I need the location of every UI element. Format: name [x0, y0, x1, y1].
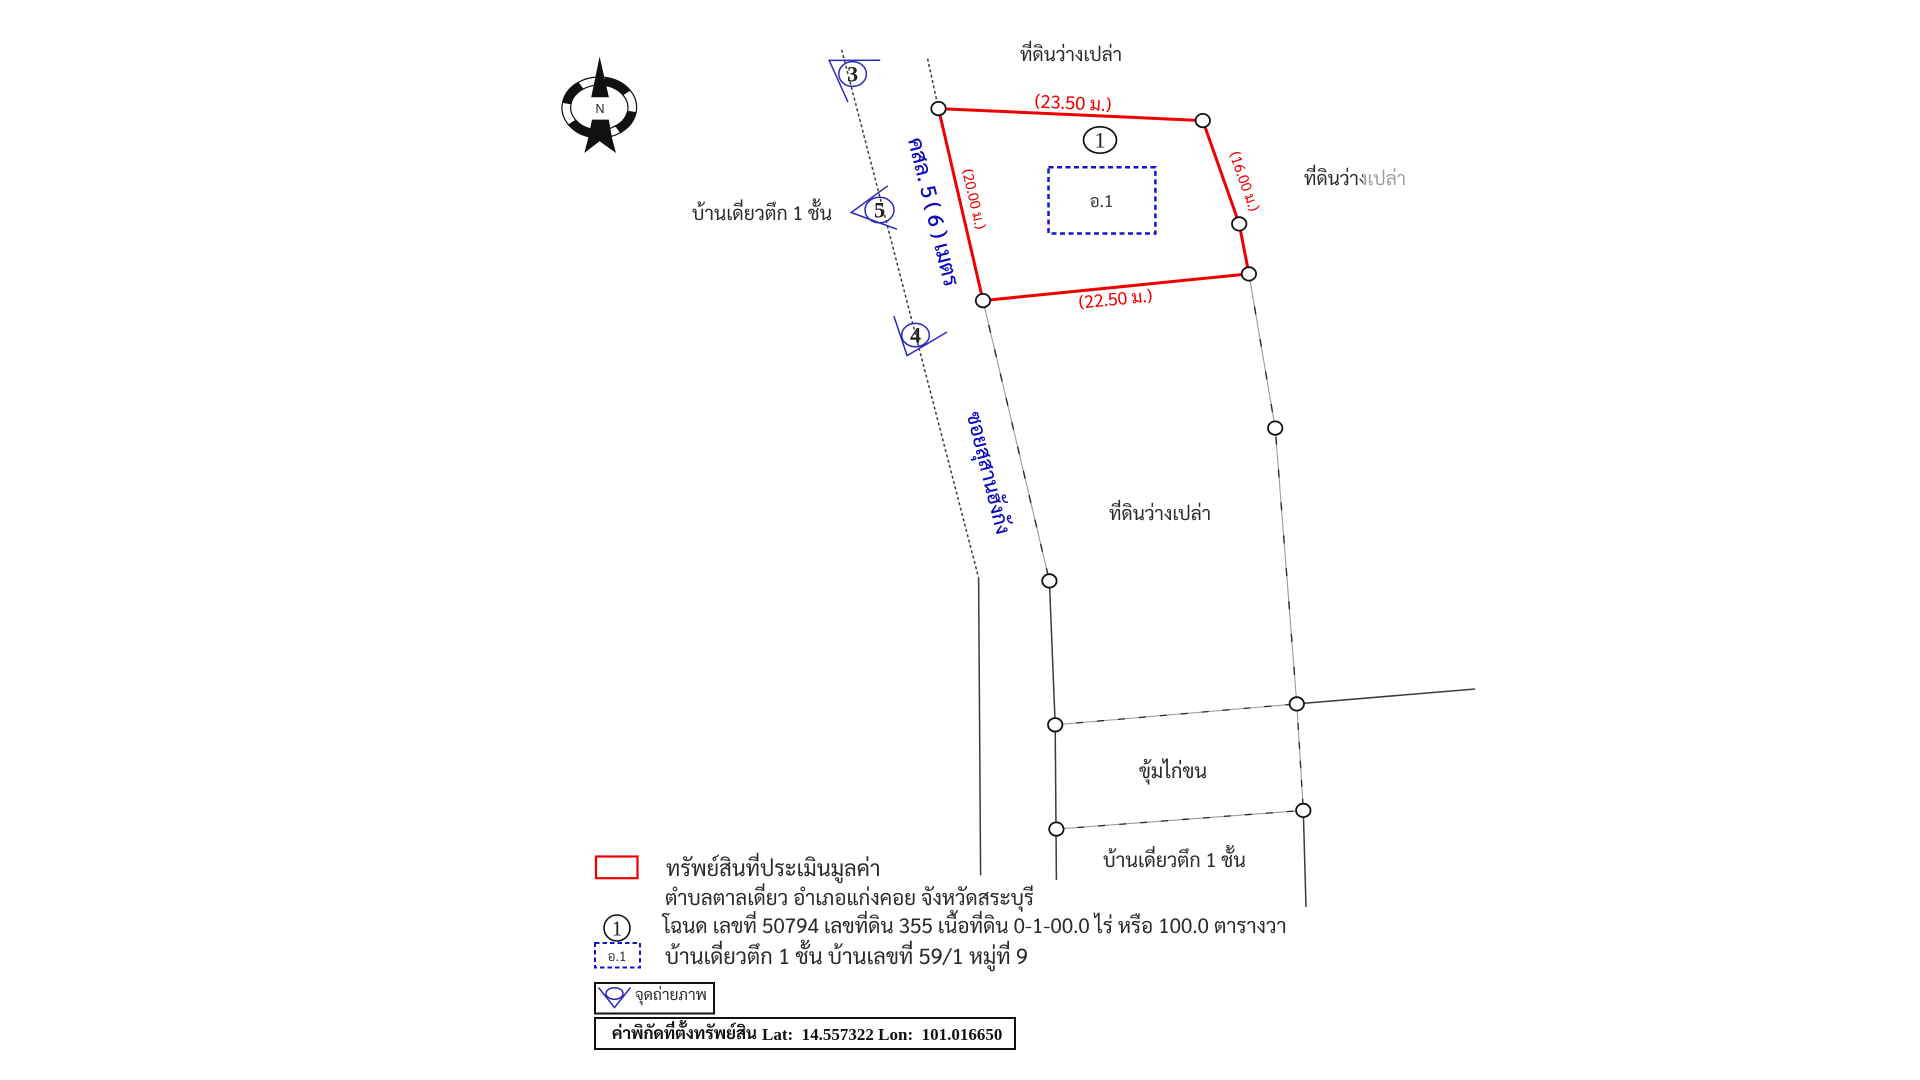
svg-text:1: 1 [612, 917, 623, 941]
svg-text:4: 4 [910, 323, 921, 348]
svg-text:3: 3 [847, 62, 858, 87]
svg-text:Lat: 14.557322 Lon: 101.0166: Lat: 14.557322 Lon: 101.016650 [762, 1025, 1002, 1044]
svg-text:1: 1 [1095, 128, 1106, 153]
svg-text:N: N [595, 102, 604, 116]
svg-text:5: 5 [874, 198, 885, 223]
